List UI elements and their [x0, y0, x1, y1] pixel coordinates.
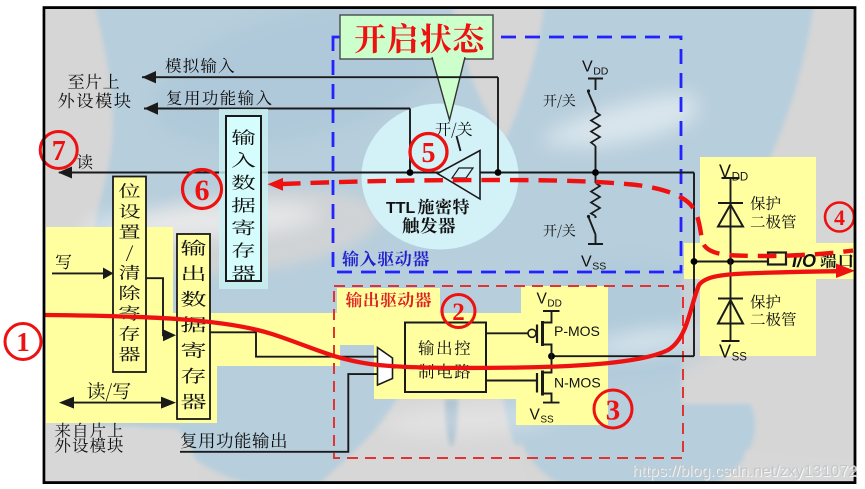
svg-text:V: V	[537, 291, 548, 308]
svg-text:SS: SS	[592, 260, 606, 272]
svg-text:DD: DD	[547, 298, 561, 309]
svg-text:https://blog.csdn.net/zxy13107: https://blog.csdn.net/zxy131072	[632, 463, 857, 480]
svg-text:6: 6	[195, 174, 210, 207]
svg-text:TTL: TTL	[386, 200, 416, 217]
svg-text:DD: DD	[732, 171, 749, 183]
svg-text:V: V	[719, 162, 731, 182]
svg-text:3: 3	[606, 394, 621, 426]
svg-text:V: V	[530, 407, 541, 424]
svg-text:N-MOS: N-MOS	[554, 375, 601, 391]
svg-text:4: 4	[834, 205, 845, 230]
svg-text:V: V	[582, 59, 593, 76]
svg-text:P-MOS: P-MOS	[554, 323, 600, 339]
svg-text:1: 1	[16, 327, 30, 357]
svg-text:DD: DD	[593, 65, 609, 77]
svg-text:7: 7	[52, 136, 66, 167]
svg-text:SS: SS	[732, 351, 748, 363]
svg-text:V: V	[581, 254, 592, 271]
svg-text:5: 5	[422, 138, 436, 169]
svg-text:V: V	[719, 342, 731, 362]
svg-text:SS: SS	[540, 414, 554, 425]
svg-text:2: 2	[452, 299, 465, 326]
